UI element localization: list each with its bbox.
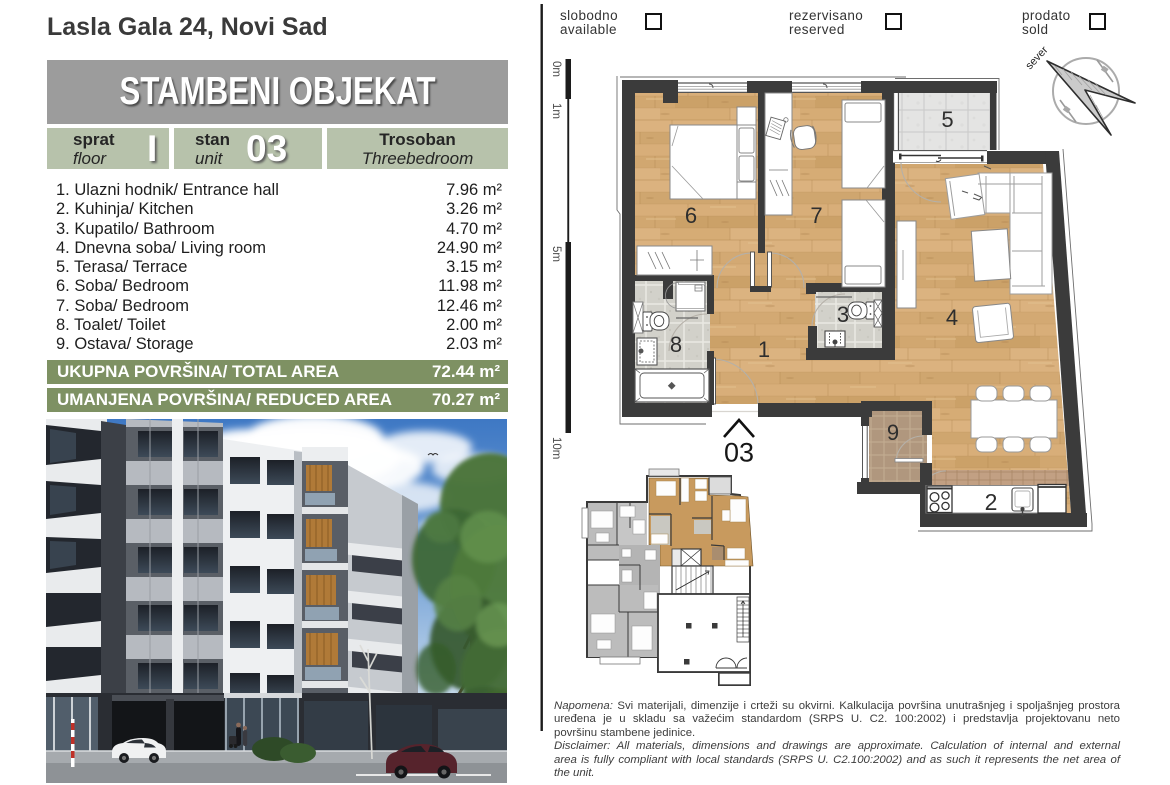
svg-text:8: 8: [670, 332, 682, 357]
svg-text:5: 5: [941, 107, 953, 132]
svg-text:10m: 10m: [550, 437, 562, 459]
svg-text:2: 2: [985, 489, 998, 515]
svg-text:03: 03: [724, 438, 754, 468]
svg-text:1m: 1m: [550, 103, 562, 119]
svg-text:6: 6: [685, 203, 697, 228]
svg-text:7: 7: [810, 203, 822, 228]
svg-text:5m: 5m: [550, 246, 562, 262]
svg-text:0m: 0m: [550, 61, 562, 77]
svg-text:3: 3: [837, 302, 849, 327]
svg-text:sever: sever: [1023, 44, 1050, 72]
svg-text:9: 9: [887, 420, 899, 445]
svg-text:1: 1: [758, 337, 770, 362]
svg-text:4: 4: [946, 305, 958, 330]
